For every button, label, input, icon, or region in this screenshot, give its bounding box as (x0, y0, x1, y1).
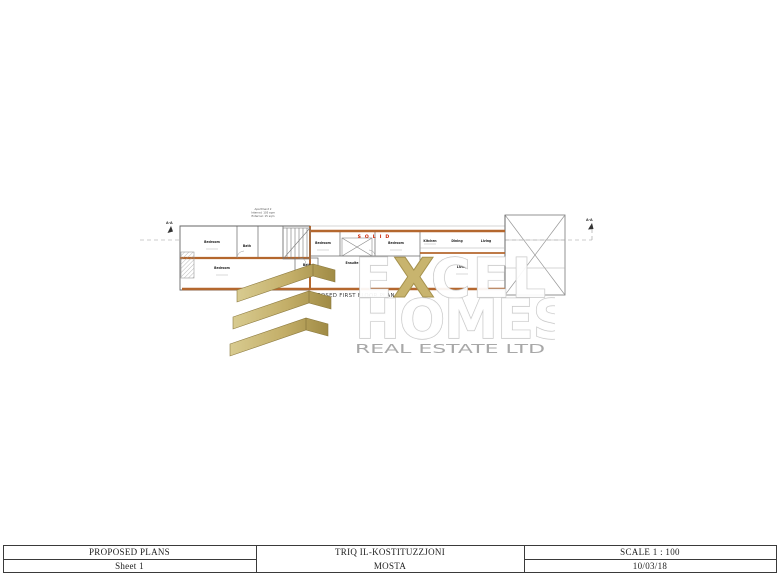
title-block-border-bottom (3, 572, 777, 573)
drawing-sheet: A-A A-A (0, 0, 780, 580)
section-arrow-left-icon (168, 226, 174, 233)
room-label-bedroom-1: Bedroom (204, 240, 220, 244)
section-marker-right: A-A (586, 218, 593, 222)
side-shaft-hatched (181, 252, 194, 278)
section-arrow-right-icon (588, 223, 594, 230)
logo-gold-ribbons (230, 264, 335, 356)
title-block-vline-4 (776, 545, 777, 573)
section-marker-left: A-A (166, 221, 173, 225)
watermark: E X CEL HOMES REAL ESTATE LTD (225, 240, 555, 365)
brand-real-estate-ltd: REAL ESTATE LTD (355, 341, 545, 356)
title-block-sheet-number: Sheet 1 (3, 559, 256, 572)
apartment-annotation: Apartment 2 Internal: 105 sqm External: … (251, 207, 275, 218)
title-block-locality: MOSTA (256, 559, 524, 572)
svg-text:External: 15 sqm: External: 15 sqm (252, 214, 275, 218)
title-block-scale: SCALE 1 : 100 (524, 545, 776, 559)
title-block-drawing-title: PROPOSED PLANS (3, 545, 256, 559)
title-block-street: TRIQ IL-KOSTITUZZJONI (256, 546, 524, 558)
title-block-date: 10/03/18 (524, 559, 776, 572)
